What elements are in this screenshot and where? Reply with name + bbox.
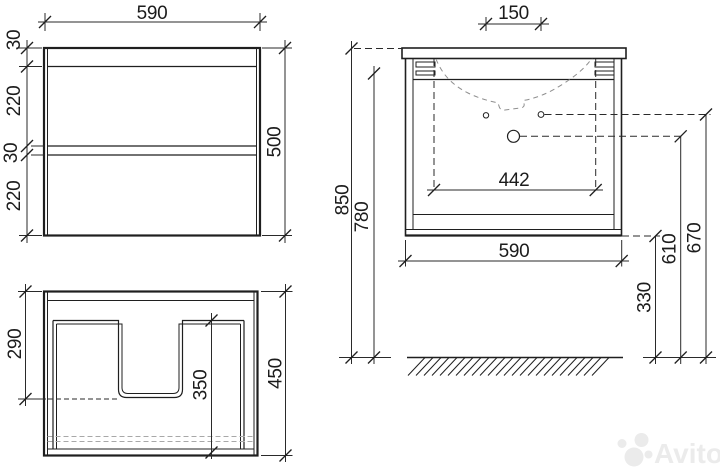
avito-logo-icon: [618, 433, 653, 467]
dim-side-underside-height: 780: [352, 202, 373, 233]
top-drawer-outline: [53, 321, 244, 450]
dim-front-lower-drawer: 220: [4, 181, 25, 212]
dim-side-width: 590: [499, 241, 530, 262]
dim-top-cutout-depth: 290: [5, 329, 26, 360]
dim-side-faucet-spacing: 150: [498, 3, 529, 24]
side-height-dimensions: 850 780: [333, 41, 403, 364]
side-width-dimension: 590: [398, 240, 629, 267]
side-sink-width-dimension: 442: [427, 170, 603, 196]
top-cabinet-outline: [44, 292, 258, 456]
dim-top-drawer-depth: 350: [191, 370, 212, 401]
front-cabinet-outline: [44, 48, 260, 236]
watermark: Avito: [618, 433, 720, 469]
dim-front-height: 500: [265, 127, 286, 158]
front-width-dimension: 590: [38, 3, 267, 31]
top-hidden-lines: [48, 399, 255, 442]
vanity-technical-drawing: 590 30 220 30 220 500: [0, 0, 720, 473]
dim-side-drain-height: 610: [660, 234, 681, 265]
side-faucet-spacing-dimension: 150: [478, 3, 549, 31]
dim-front-width: 590: [137, 3, 168, 24]
side-view: 150 442 590 850 780: [333, 3, 717, 376]
top-drawer-depth-dimension: 350: [191, 313, 218, 459]
top-view: 290 450 350: [5, 284, 293, 462]
floor-hatch: [408, 358, 609, 376]
dim-side-faucet-height: 670: [685, 223, 706, 254]
front-chain-dimension: 30 220 30 220: [1, 30, 44, 243]
front-height-dimension: 500: [262, 40, 292, 243]
watermark-brand: Avito: [654, 438, 720, 469]
side-faucet-holes: [483, 112, 544, 143]
dim-front-gap: 30: [1, 143, 22, 164]
dim-front-upper-drawer: 220: [4, 86, 25, 117]
top-depth-dimension: 450: [261, 284, 293, 462]
dim-top-depth: 450: [266, 358, 287, 389]
dim-side-sink-width: 442: [499, 170, 530, 191]
side-drain-hole: [508, 130, 520, 142]
drawing-canvas: 590 30 220 30 220 500: [0, 0, 720, 473]
top-cutout-depth-dimension: 290: [5, 284, 46, 406]
dim-front-top-rail: 30: [4, 30, 25, 51]
front-view: 590 30 220 30 220 500: [1, 3, 292, 243]
side-mounting-brackets: [416, 62, 614, 75]
dim-side-total-height: 850: [333, 185, 354, 216]
dim-side-floor-clearance: 330: [635, 282, 656, 313]
